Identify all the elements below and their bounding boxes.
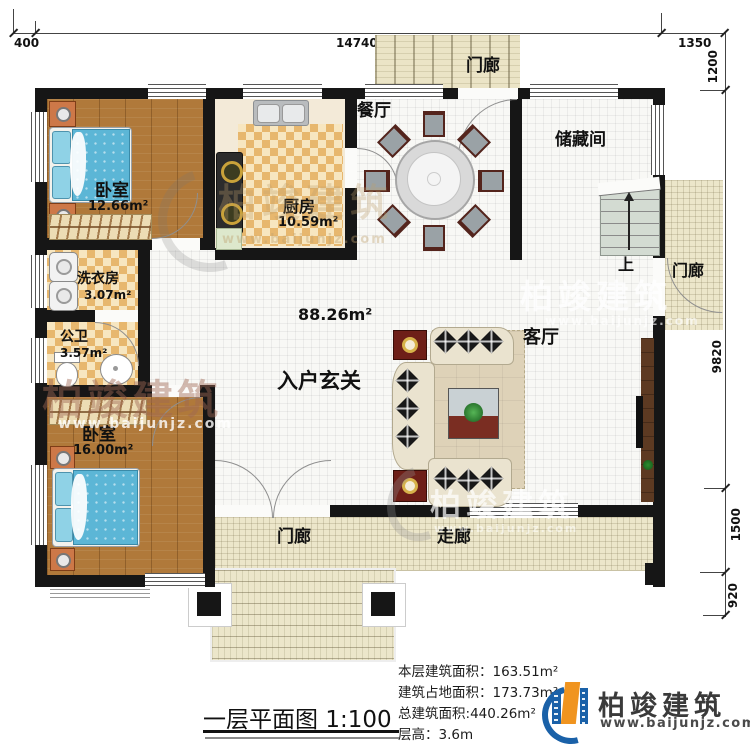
window-dining-top: [365, 84, 443, 99]
door-gap-right-porch: [653, 258, 665, 316]
coffee-table: [448, 388, 499, 439]
label-foyer: 入户玄关: [277, 370, 361, 393]
tv-screen: [636, 396, 643, 448]
window-bedroom2-left: [31, 465, 47, 545]
lamp-icon: [56, 107, 71, 122]
window-bathroom-left: [31, 338, 47, 383]
washing-machine: [49, 281, 78, 311]
company-logo-url: www.baijunjz.com: [600, 716, 750, 731]
door-gap-bathroom: [95, 310, 138, 322]
label-laundry-area: 3.07m²: [84, 289, 131, 302]
dining-chair: [423, 225, 445, 251]
dining-table: [395, 140, 475, 220]
title-underline: [203, 730, 399, 733]
logo-building-blue-right: [580, 688, 588, 724]
drawing-title: 一层平面图 1:100: [203, 700, 392, 734]
door-gap-kitchen: [345, 148, 357, 188]
wardrobe-bedroom1: [49, 214, 152, 240]
dining-chair: [364, 170, 390, 192]
sink-basin: [257, 104, 280, 123]
label-laundry: 洗衣房: [77, 272, 119, 287]
dim-top-400: 400: [14, 36, 39, 50]
wardrobe-bedroom2: [49, 399, 147, 425]
porch-column: [197, 592, 221, 616]
label-bedroom1: 卧室: [95, 182, 129, 201]
info-line: 本层建筑面积：163.51m²: [398, 662, 558, 683]
logo-building-blue: [552, 692, 561, 724]
label-stairs-up: 上: [618, 256, 634, 274]
info-label: 总建筑面积:: [398, 706, 470, 722]
window-storage-right: [651, 105, 667, 175]
window-bedroom2-bottom: [145, 573, 205, 588]
pillow: [52, 131, 71, 164]
label-bathroom-area: 3.57m²: [60, 347, 107, 360]
info-block: 本层建筑面积：163.51m² 建筑占地面积：173.73m² 总建筑面积:44…: [398, 662, 558, 746]
dim-top-1350: 1350: [678, 36, 711, 50]
drain-icon: [113, 366, 118, 371]
dim-right-920: 920: [726, 583, 740, 608]
label-kitchen-area: 10.59m²: [278, 216, 338, 230]
door-gap-bedroom2: [152, 385, 200, 397]
label-kitchen: 厨房: [283, 198, 315, 216]
stairs-arrow-head: [624, 192, 634, 201]
label-bathroom: 公卫: [60, 330, 88, 345]
dimension-tick: [721, 610, 730, 619]
lamp-icon: [402, 337, 418, 353]
washer-door-icon: [56, 288, 72, 304]
dim-top-14740: 14740: [336, 36, 378, 50]
toilet-bowl: [56, 362, 78, 387]
porch-column: [371, 592, 395, 616]
info-line: 层高：3.6m: [398, 725, 558, 746]
window-laundry-left: [31, 255, 47, 308]
title-underline-thin: [205, 737, 399, 739]
info-line: 建筑占地面积：173.73m²: [398, 683, 558, 704]
label-porch-bottom: 门廊: [277, 528, 311, 547]
info-value: 3.6m: [439, 727, 474, 743]
nightstand: [49, 101, 76, 127]
window-sill: [50, 589, 150, 601]
door-gap-top-porch: [458, 88, 518, 99]
label-living: 客厅: [523, 328, 559, 348]
wall-laundry-right: [138, 250, 150, 397]
dim-right-9820: 9820: [710, 340, 724, 373]
nightstand: [50, 446, 75, 469]
info-label: 本层建筑面积：: [398, 664, 493, 680]
kitchen-sink: [253, 100, 309, 126]
label-bedroom2: 卧室: [82, 426, 116, 445]
info-value: 440.26m²: [470, 706, 536, 722]
window-kitchen-top: [243, 84, 322, 99]
window-bedroom1-left: [31, 112, 47, 182]
extension-line: [700, 572, 725, 573]
wall-bedroom2-right: [203, 385, 215, 587]
stairs-arrow-line: [628, 200, 630, 250]
label-porch-top: 门廊: [466, 57, 500, 76]
info-label: 建筑占地面积：: [398, 685, 493, 701]
label-hall-area: 88.26m²: [298, 306, 372, 324]
sink-basin: [282, 104, 305, 123]
dining-table-center: [427, 172, 441, 186]
window-bedroom1-top: [148, 84, 206, 99]
pillow: [52, 166, 71, 199]
label-bedroom1-area: 12.66m²: [88, 200, 148, 214]
company-logo-icon: [542, 676, 594, 738]
side-table: [393, 330, 427, 360]
dining-chair: [423, 111, 445, 137]
label-dining: 餐厅: [357, 102, 391, 121]
right-dimension-line: [725, 33, 726, 617]
lamp-icon: [56, 553, 71, 568]
window-storage-top: [530, 84, 618, 99]
dim-right-1500: 1500: [729, 508, 743, 541]
plant-small: [643, 460, 653, 470]
label-porch-right: 门廊: [672, 262, 704, 280]
extension-line: [700, 90, 725, 91]
washer-door-icon: [56, 259, 72, 275]
label-bedroom2-area: 16.00m²: [73, 444, 133, 458]
top-dimension-line: [13, 33, 725, 34]
dining-chair: [478, 170, 504, 192]
dim-right-1200: 1200: [706, 50, 720, 83]
plant-icon: [464, 403, 483, 422]
lamp-icon: [56, 451, 71, 466]
floor-plan-page: 400 14740 1350 1200 9820 1500 920: [0, 0, 750, 746]
info-label: 层高：: [398, 727, 439, 743]
info-line: 总建筑面积:440.26m²: [398, 704, 558, 725]
nightstand: [50, 548, 75, 571]
label-storage: 储藏间: [555, 131, 606, 150]
washing-machine: [49, 252, 78, 282]
